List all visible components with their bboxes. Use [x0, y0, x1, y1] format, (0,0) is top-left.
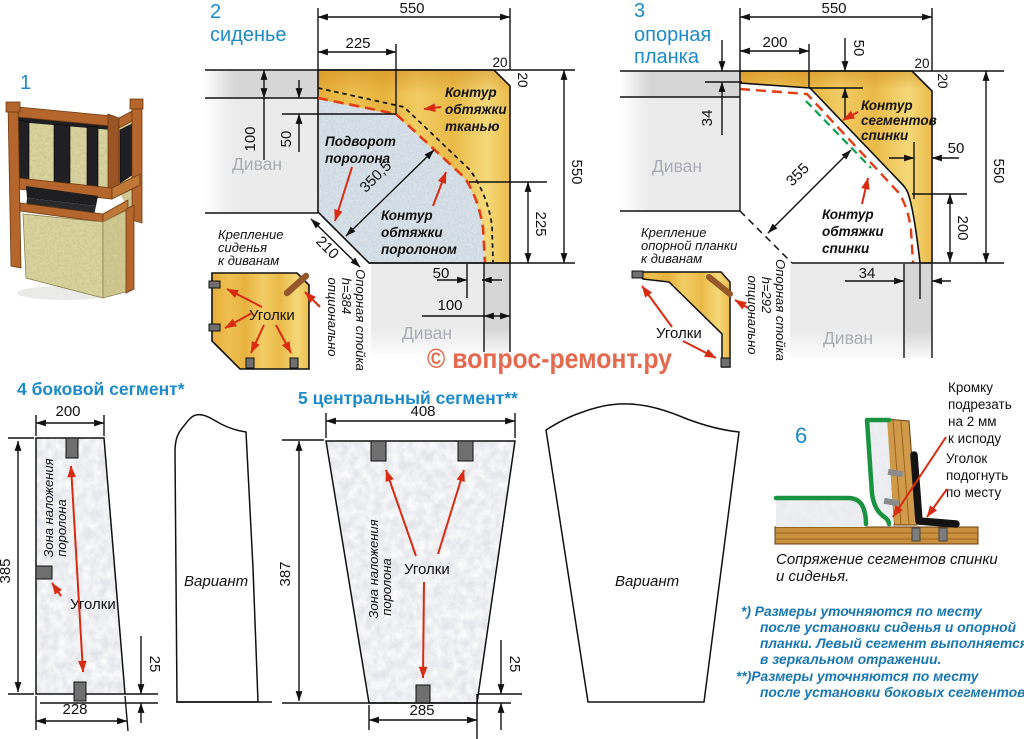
svg-text:подрезать: подрезать — [948, 397, 1012, 412]
svg-text:© вопрос-ремонт.ру: © вопрос-ремонт.ру — [427, 343, 672, 374]
svg-text:обтяжки: обтяжки — [381, 225, 443, 240]
svg-text:Вариант: Вариант — [615, 573, 679, 590]
svg-text:25: 25 — [506, 656, 523, 673]
svg-text:в зеркальном отражении.: в зеркальном отражении. — [760, 652, 941, 667]
svg-text:20: 20 — [492, 55, 507, 70]
svg-text:50: 50 — [278, 131, 295, 148]
svg-text:550: 550 — [990, 158, 1007, 183]
svg-text:Диван: Диван — [823, 328, 873, 348]
svg-text:Контур: Контур — [445, 85, 497, 100]
svg-text:планка: планка — [634, 46, 700, 68]
svg-text:Опорная стойка: Опорная стойка — [353, 269, 368, 371]
svg-text:1: 1 — [20, 72, 31, 94]
svg-text:200: 200 — [762, 34, 787, 51]
svg-text:после установки боковых сегмен: после установки боковых сегментов. — [760, 685, 1024, 700]
svg-text:25: 25 — [146, 656, 163, 673]
svg-text:Уголок: Уголок — [946, 451, 987, 466]
svg-text:225: 225 — [532, 211, 549, 236]
svg-text:Диван: Диван — [402, 323, 452, 343]
svg-text:к диванам: к диванам — [641, 251, 702, 266]
svg-text:200: 200 — [954, 215, 971, 240]
svg-text:обтяжки: обтяжки — [445, 102, 507, 117]
svg-text:на 2 мм: на 2 мм — [948, 414, 997, 429]
svg-text:Диван: Диван — [232, 154, 282, 174]
svg-text:спинки: спинки — [861, 128, 909, 143]
svg-text:550: 550 — [568, 159, 585, 184]
svg-text:Диван: Диван — [652, 156, 702, 176]
svg-text:по месту: по месту — [946, 485, 1001, 500]
svg-text:3: 3 — [634, 0, 645, 22]
svg-text:20: 20 — [515, 72, 530, 87]
svg-text:h=292: h=292 — [759, 277, 774, 314]
svg-text:4 боковой сегмент*: 4 боковой сегмент* — [17, 379, 185, 399]
svg-text:50: 50 — [433, 265, 450, 282]
svg-text:поролоном: поролоном — [381, 242, 457, 257]
svg-text:385: 385 — [0, 558, 14, 583]
svg-text:100: 100 — [437, 297, 462, 314]
svg-text:и сиденья.: и сиденья. — [776, 568, 849, 585]
svg-text:сегментов: сегментов — [861, 113, 937, 128]
svg-text:Вариант: Вариант — [184, 573, 248, 590]
svg-text:225: 225 — [345, 35, 370, 52]
svg-text:тканью: тканью — [445, 119, 500, 134]
svg-text:Подворот: Подворот — [325, 134, 396, 149]
svg-text:550: 550 — [821, 0, 846, 17]
svg-text:Контур: Контур — [861, 98, 913, 113]
svg-text:20: 20 — [935, 73, 950, 88]
svg-text:50: 50 — [850, 40, 867, 57]
svg-text:к исподу: к исподу — [948, 431, 1001, 446]
svg-text:6: 6 — [795, 423, 807, 448]
svg-text:опционально: опционально — [745, 275, 760, 354]
svg-text:**)Размеры уточняются по месту: **)Размеры уточняются по месту — [736, 669, 980, 684]
svg-text:опорная: опорная — [634, 24, 711, 46]
svg-text:подогнуть: подогнуть — [946, 468, 1008, 483]
svg-text:h=384: h=384 — [339, 278, 354, 315]
svg-text:Уголки: Уголки — [656, 325, 702, 342]
svg-text:сиденье: сиденье — [210, 24, 287, 46]
svg-text:поролона: поролона — [325, 151, 391, 166]
svg-text:200: 200 — [55, 403, 80, 420]
svg-text:20: 20 — [914, 56, 929, 71]
svg-text:2: 2 — [210, 1, 221, 23]
svg-text:285: 285 — [409, 702, 434, 719]
svg-text:поролона: поролона — [379, 558, 394, 616]
svg-text:100: 100 — [242, 126, 259, 151]
svg-text:550: 550 — [399, 0, 424, 17]
svg-text:Уголки: Уголки — [249, 307, 295, 324]
svg-text:поролона: поролона — [54, 499, 69, 557]
svg-text:Уголки: Уголки — [404, 561, 450, 578]
svg-text:Контур: Контур — [822, 207, 874, 222]
svg-text:Сопряжение сегментов спинки: Сопряжение сегментов спинки — [776, 551, 998, 568]
svg-text:5 центральный сегмент**: 5 центральный сегмент** — [298, 388, 518, 408]
svg-text:Уголки: Уголки — [70, 596, 116, 613]
svg-text:34: 34 — [859, 265, 876, 282]
svg-text:408: 408 — [410, 403, 435, 420]
svg-text:спинки: спинки — [822, 241, 870, 256]
svg-text:387: 387 — [277, 561, 294, 586]
svg-text:опционально: опционально — [325, 277, 340, 356]
svg-text:после установки сиденья и опор: после установки сиденья и опорной — [760, 620, 1017, 635]
svg-text:50: 50 — [948, 140, 965, 157]
svg-text:к диванам: к диванам — [218, 253, 279, 268]
svg-text:Опорная стойка: Опорная стойка — [773, 259, 788, 361]
svg-text:планки. Левый сегмент выполняе: планки. Левый сегмент выполняется — [760, 636, 1024, 651]
svg-text:Кромку: Кромку — [948, 380, 993, 395]
svg-text:34: 34 — [699, 110, 716, 127]
svg-text:*) Размеры уточняются по мест: *) Размеры уточняются по месту — [741, 604, 983, 619]
svg-text:обтяжки: обтяжки — [822, 224, 884, 239]
svg-text:Контур: Контур — [381, 208, 433, 223]
